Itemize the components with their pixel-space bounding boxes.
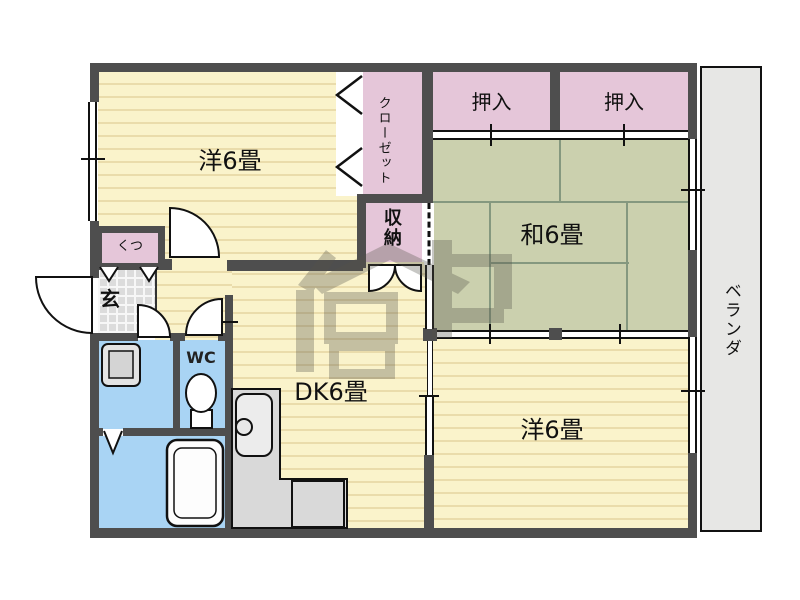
kitchen-counter	[232, 389, 347, 528]
door-washroom	[138, 305, 170, 337]
label-storage: 収納	[381, 208, 400, 248]
label-shoe-cabinet: くつ	[102, 240, 158, 254]
label-dk: DK6畳	[241, 380, 421, 405]
toilet-icon	[186, 374, 216, 428]
label-western-top: 洋6畳	[140, 149, 320, 174]
label-veranda: ベランダ	[721, 282, 739, 358]
closet-folding-door	[337, 76, 362, 186]
label-western-bottom: 洋6畳	[462, 418, 642, 443]
shoe-cabinet-door-marks	[100, 267, 158, 281]
door-entrance	[36, 277, 92, 333]
fixtures-overlay	[0, 0, 800, 600]
label-oshiire-left: 押入	[432, 92, 551, 113]
label-wc: WC	[180, 350, 222, 367]
watermark-logo	[296, 240, 512, 374]
label-closet: クローゼット	[376, 96, 390, 186]
floorplan-canvas: 洋6畳 和6畳 DK6畳 洋6畳 押入 押入 クローゼット 収納 ベランダ 玄 …	[0, 0, 800, 600]
bathroom-door-mark	[104, 431, 122, 453]
door-wc	[186, 299, 222, 335]
washing-machine	[102, 344, 140, 386]
label-japanese: 和6畳	[462, 223, 642, 248]
stove-unit	[292, 481, 344, 527]
label-entrance: 玄	[100, 289, 120, 310]
label-oshiire-right: 押入	[560, 92, 688, 113]
faucet-icon	[236, 419, 252, 435]
door-western-top	[170, 208, 219, 257]
bathtub	[167, 440, 223, 526]
